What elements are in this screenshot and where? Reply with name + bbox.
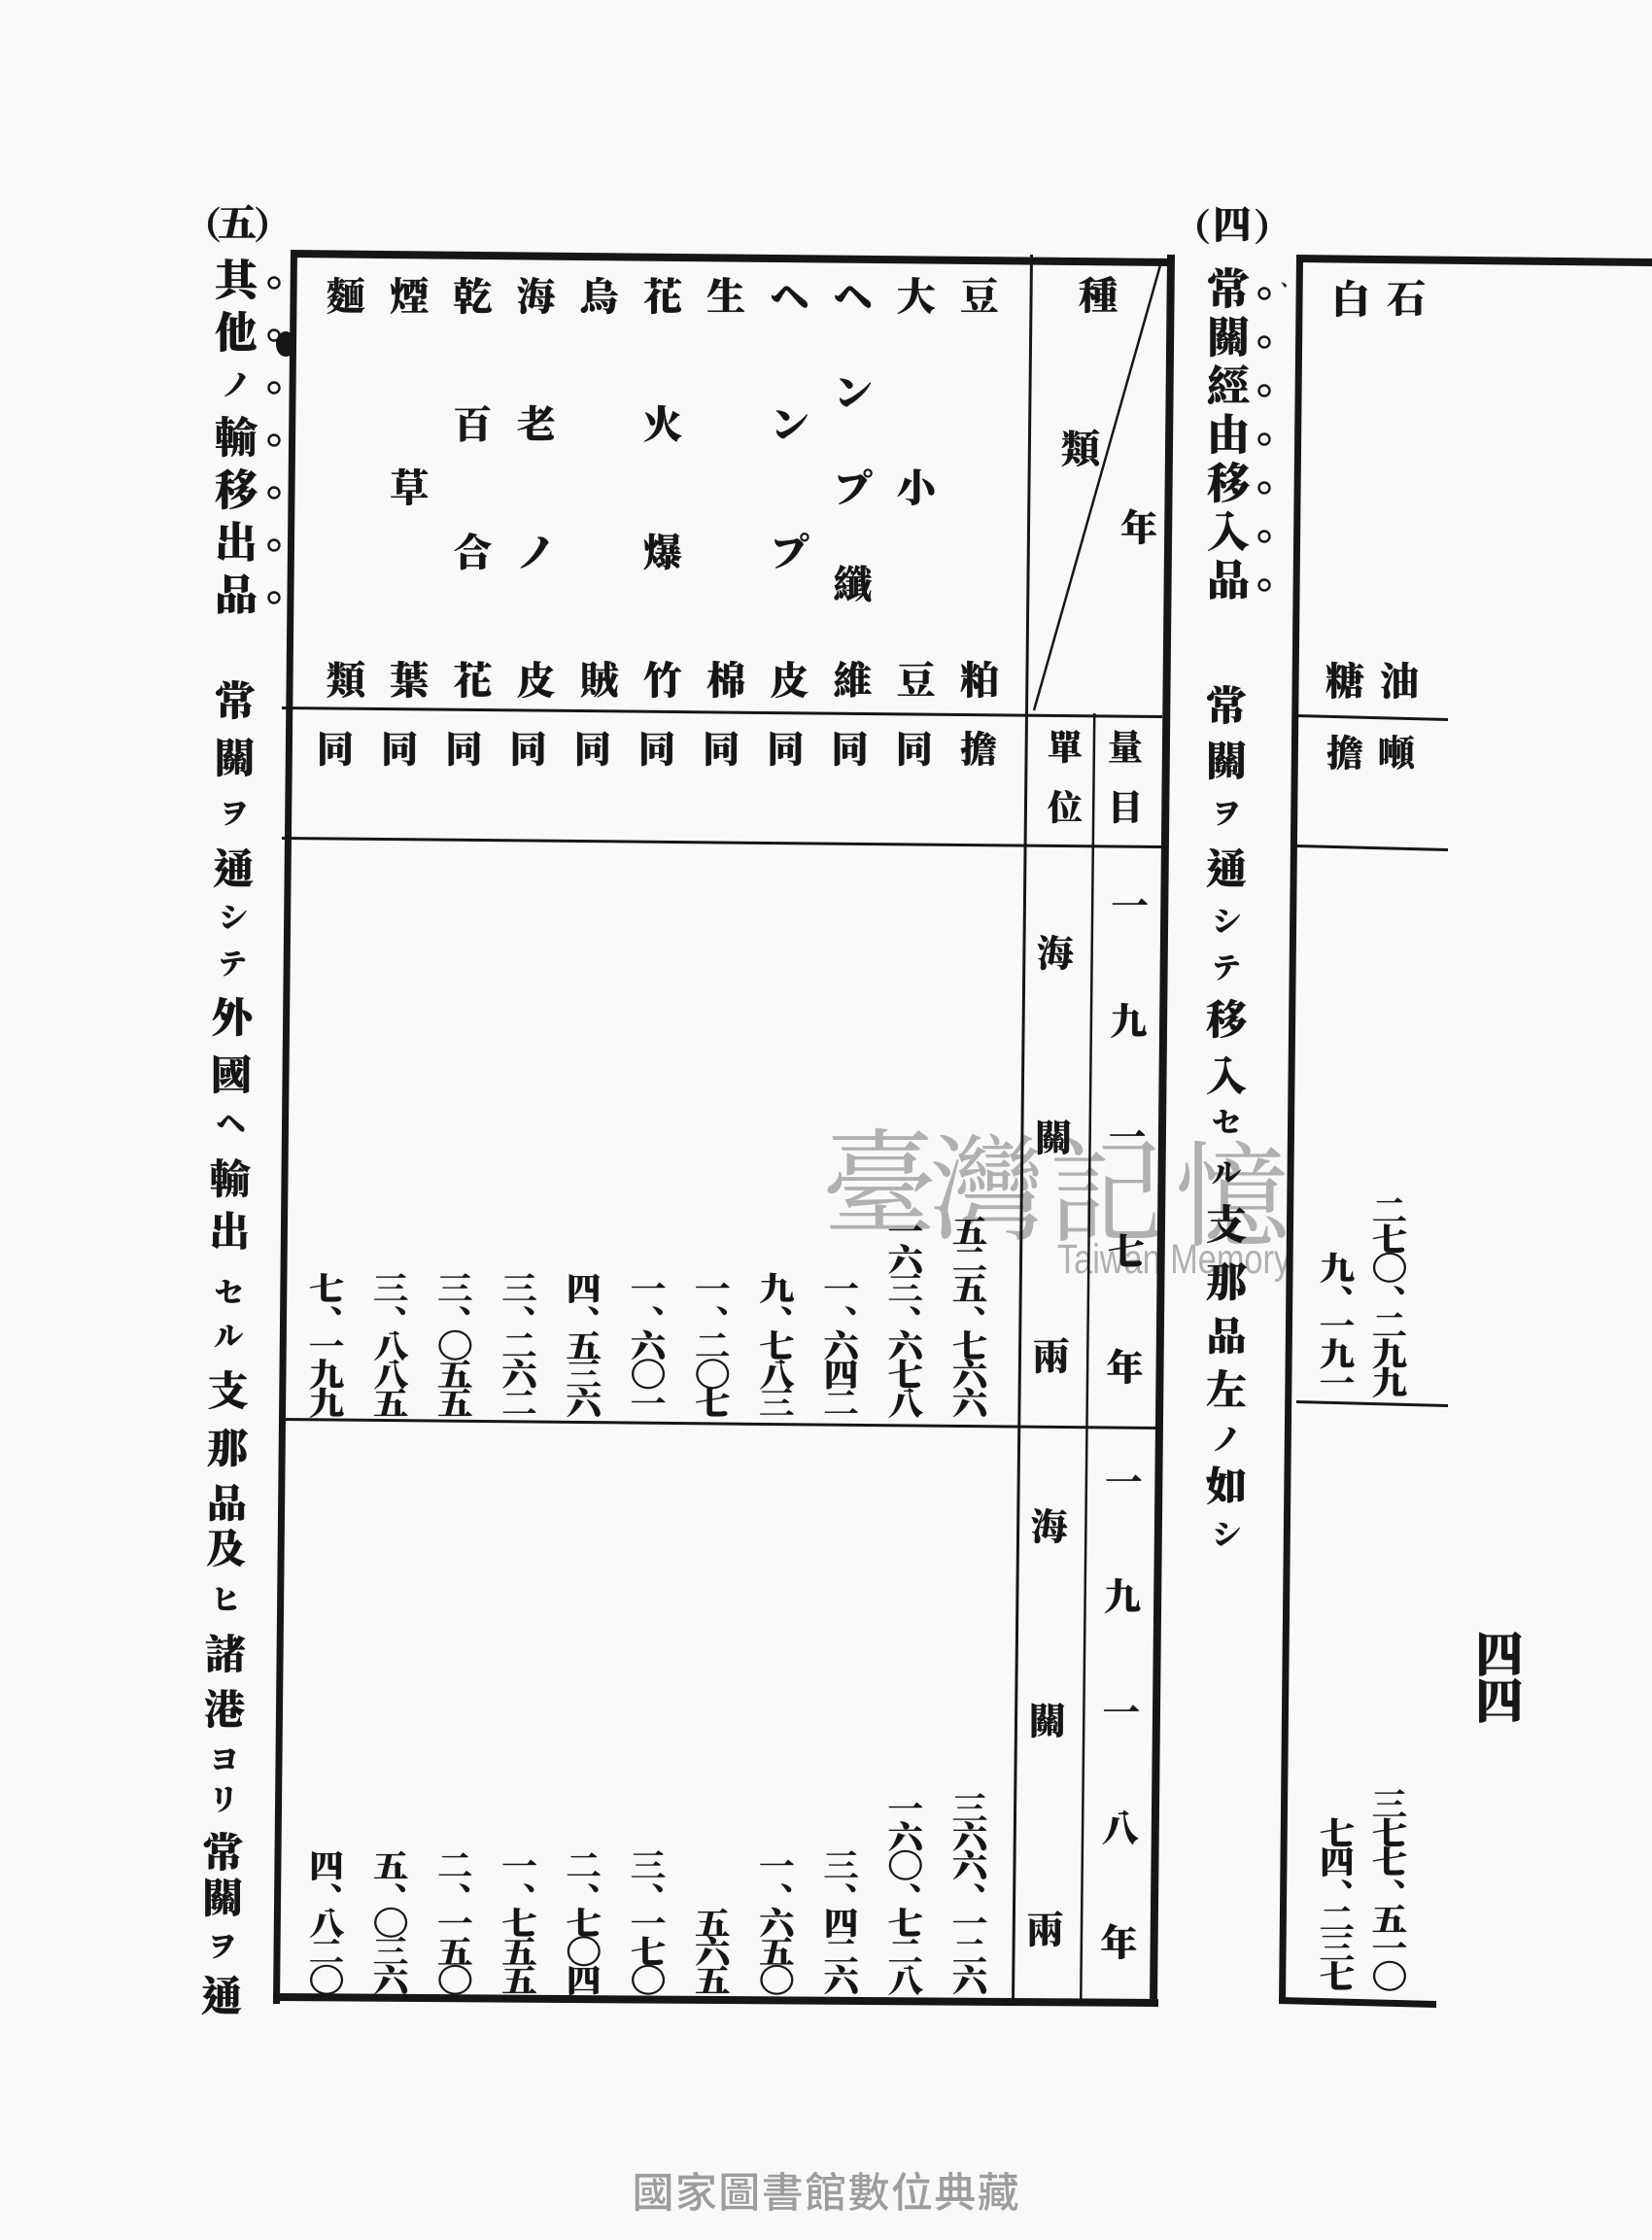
svg-text:Taiwan Memory: Taiwan Memory	[1057, 1236, 1291, 1283]
